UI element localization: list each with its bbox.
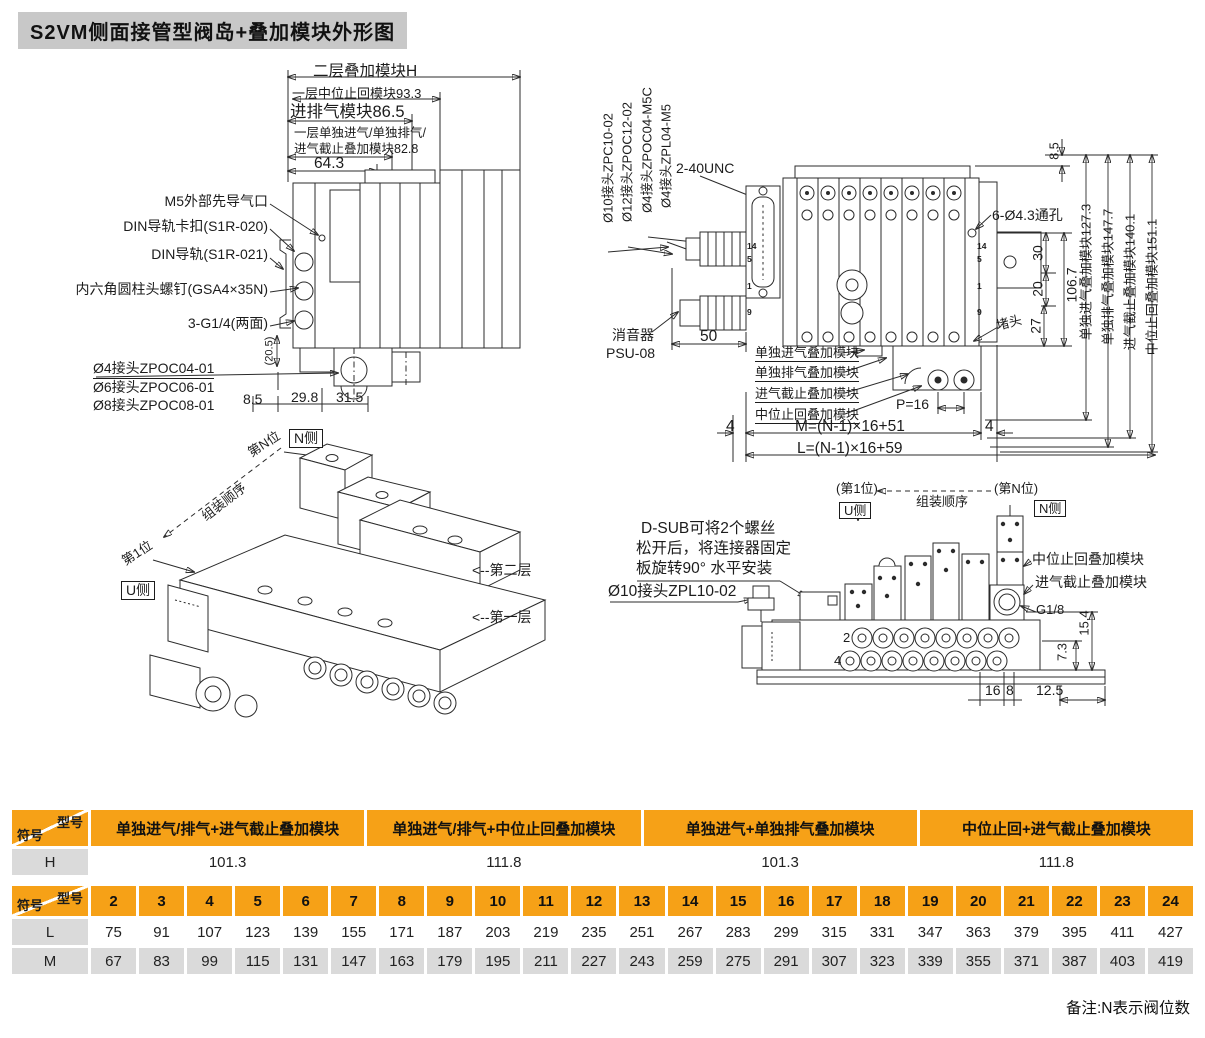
dim-label-stop-module-140-1: 进气截止叠加模块140.1: [1122, 214, 1137, 351]
dsub-pin-9: 9: [747, 307, 752, 317]
lm-table-header-19: 19: [908, 886, 953, 916]
module-label-air-in: 单独进气叠加模块: [755, 345, 859, 362]
dim-label-29-8: 29.8: [291, 389, 318, 406]
lm-table-value-L-4: 139: [283, 919, 328, 945]
fitting-label-zpl10: Ø10接头ZPL10-02: [608, 583, 736, 601]
label-u-side-iso: U侧: [121, 581, 155, 600]
dsub-pin-numbers: 14519: [977, 241, 991, 321]
lm-table-value-L-20: 395: [1052, 919, 1097, 945]
dim-label-supply-module: 进排气模块86.5: [290, 103, 405, 122]
lm-table-value-M-3: 115: [235, 948, 280, 974]
dsub-pin-5: 5: [977, 254, 982, 264]
dim-label-layer2-height: 二层叠加模块H: [313, 63, 417, 81]
h-table-value-2: 101.3: [644, 849, 917, 875]
h-table-value-1: 111.8: [367, 849, 640, 875]
lm-table-header-16: 16: [764, 886, 809, 916]
lm-table-value-M-15: 307: [812, 948, 857, 974]
lm-table-header-18: 18: [860, 886, 905, 916]
lm-table-header-11: 11: [523, 886, 568, 916]
corner-label-symbol: 符号: [17, 825, 43, 844]
h-table-header-0: 单独进气/排气+进气截止叠加模块: [91, 810, 364, 846]
catalog-page: S2VM侧面接管型阀岛+叠加模块外形图: [0, 0, 1205, 1038]
dsub-pin-1: 1: [747, 281, 752, 291]
dsub-pin-14: 14: [977, 241, 986, 251]
dsub-pin-14: 14: [747, 241, 756, 251]
dim-label-20-5: (20.5): [264, 337, 277, 366]
h-table-header-1: 单独进气/排气+中位止回叠加模块: [367, 810, 640, 846]
lm-table-value-M-9: 211: [523, 948, 568, 974]
fitting-label-zpc10: Ø10接头ZPC10-02: [600, 113, 615, 223]
label-second-layer: <--第二层: [472, 562, 532, 579]
lm-table-value-L-13: 283: [716, 919, 761, 945]
lm-table-value-M-7: 179: [427, 948, 472, 974]
module-label-air-out: 单独排气叠加模块: [755, 365, 859, 382]
h-table-row-label: H: [12, 849, 88, 875]
dim-label-12-5: 12.5: [1036, 682, 1063, 699]
label-n-side-iso: N侧: [289, 429, 323, 448]
lm-table-value-L-9: 219: [523, 919, 568, 945]
lm-table-value-L-2: 107: [187, 919, 232, 945]
fitting-label-zpoc12: Ø12接头ZPOC12-02: [619, 102, 634, 222]
lm-table-row-label-L: L: [12, 919, 88, 945]
dim-label-31-5: 31.5: [336, 389, 363, 406]
lm-table-corner-cell: 型号 符号: [12, 886, 88, 916]
label-through-holes: 6-Ø4.3通孔: [992, 207, 1063, 224]
dim-label-check-module-151-1: 中位止回叠加模块151.1: [1144, 219, 1159, 356]
lm-table-value-M-11: 243: [619, 948, 664, 974]
dim-label-air-out-module-147-7: 单独排气叠加模块147.7: [1100, 209, 1115, 346]
label-assembly-order-end: 组装顺序: [916, 494, 968, 509]
lm-table-header-22: 22: [1052, 886, 1097, 916]
dim-label-30: 30: [1030, 245, 1047, 261]
dsub-note-line2: 松开后，将连接器固定: [636, 540, 791, 558]
h-table-corner-cell: 型号 符号: [12, 810, 88, 846]
fitting-label-zpoc06: Ø6接头ZPOC06-01: [93, 379, 214, 396]
dsub-note-line3: 板旋转90° 水平安装: [636, 560, 772, 578]
lm-table-header-4: 4: [187, 886, 232, 916]
lm-table-value-M-18: 355: [956, 948, 1001, 974]
dim-label-50: 50: [700, 328, 717, 346]
label-position-n-end: (第N位): [994, 481, 1038, 496]
callout-g14-ports: 3-G1/4(两面): [38, 315, 268, 332]
dim-label-8-5-side: 8.5: [1048, 142, 1063, 159]
lm-table-header-23: 23: [1100, 886, 1145, 916]
dim-label-27: 27: [1028, 318, 1045, 334]
dsub-pin-5: 5: [747, 254, 752, 264]
lm-table-value-M-2: 99: [187, 948, 232, 974]
lm-table-value-L-0: 75: [91, 919, 136, 945]
corner-label-symbol: 符号: [17, 895, 43, 914]
lm-table-value-M-21: 403: [1100, 948, 1145, 974]
fitting-label-zpoc08: Ø8接头ZPOC08-01: [93, 397, 214, 414]
dsub-pin-9: 9: [977, 307, 982, 317]
callout-socket-head-screw: 内六角圆柱头螺钉(GSA4×35N): [38, 281, 268, 298]
iso-view-art: [150, 444, 545, 717]
label-silencer: 消音器: [612, 327, 654, 344]
lm-table: 型号 符号 2345678910111213141516171819202122…: [12, 886, 1193, 974]
lm-table-header-21: 21: [1004, 886, 1049, 916]
lm-table-header-13: 13: [619, 886, 664, 916]
lm-table-header-7: 7: [331, 886, 376, 916]
lm-table-value-L-18: 363: [956, 919, 1001, 945]
h-table-header-2: 单独进气+单独排气叠加模块: [644, 810, 917, 846]
h-table: 型号 符号 单独进气/排气+进气截止叠加模块单独进气/排气+中位止回叠加模块单独…: [12, 810, 1193, 875]
lm-table-value-L-5: 155: [331, 919, 376, 945]
lm-table-row-label-M: M: [12, 948, 88, 974]
lm-table-value-L-15: 315: [812, 919, 857, 945]
dim-label-15-4: 15.4: [1076, 610, 1091, 635]
lm-table-value-L-19: 379: [1004, 919, 1049, 945]
lm-table-header-12: 12: [571, 886, 616, 916]
dim-label-4-right: 4: [985, 418, 994, 436]
dim-label-20: 20: [1030, 281, 1047, 297]
lm-table-value-M-5: 147: [331, 948, 376, 974]
label-position-1-end: (第1位): [836, 481, 878, 496]
lm-table-value-L-7: 187: [427, 919, 472, 945]
dim-label-106-7: 106.7: [1064, 267, 1081, 302]
callout-m5-pilot-port: M5外部先导气口: [38, 193, 268, 210]
dim-label-8: 8: [1006, 682, 1014, 699]
lm-table-value-L-1: 91: [139, 919, 184, 945]
dsub-pin-numbers: 14519: [747, 241, 761, 321]
corner-label-model: 型号: [57, 812, 83, 831]
dim-label-pitch-16: P=16: [896, 396, 929, 413]
lm-table-value-M-16: 323: [860, 948, 905, 974]
dim-label-4-left: 4: [726, 418, 735, 436]
dim-label-check-module: 一层中位止回模块93.3: [292, 86, 421, 101]
dim-label-64-3: 64.3: [314, 155, 344, 173]
label-2-40unc: 2-40UNC: [676, 160, 734, 177]
lm-table-value-M-6: 163: [379, 948, 424, 974]
dim-label-l-formula: L=(N-1)×16+59: [797, 440, 903, 458]
lm-table-value-M-17: 339: [908, 948, 953, 974]
lm-table-value-M-12: 259: [668, 948, 713, 974]
callout-din-rail-clip: DIN导轨卡扣(S1R-020): [38, 218, 268, 235]
lm-table-header-20: 20: [956, 886, 1001, 916]
lm-table-value-M-10: 227: [571, 948, 616, 974]
dim-label-single-modules-line2: 进气截止叠加模块82.8: [294, 142, 418, 157]
lm-table-header-6: 6: [283, 886, 328, 916]
lm-table-value-L-6: 171: [379, 919, 424, 945]
label-port-row-4: 4: [834, 653, 841, 668]
lm-table-value-M-0: 67: [91, 948, 136, 974]
fitting-label-zpoc04: Ø4接头ZPOC04-01: [93, 360, 214, 379]
lm-table-header-15: 15: [716, 886, 761, 916]
lm-table-header-3: 3: [139, 886, 184, 916]
dim-label-single-modules-line1: 一层单独进气/单独排气/: [294, 126, 426, 141]
dim-label-air-in-module-127-3: 单独进气叠加模块127.3: [1078, 204, 1093, 341]
lm-table-header-5: 5: [235, 886, 280, 916]
lm-table-header-8: 8: [379, 886, 424, 916]
label-u-side-end: U侧: [839, 502, 871, 519]
footnote: 备注:N表示阀位数: [860, 996, 1190, 1018]
module-label-stop-end: 进气截止叠加模块: [1035, 574, 1147, 591]
dim-label-7-3: 7.3: [1054, 643, 1069, 661]
label-silencer-model: PSU-08: [606, 345, 655, 362]
h-table-header-3: 中位止回+进气截止叠加模块: [920, 810, 1193, 846]
lm-table-value-L-16: 331: [860, 919, 905, 945]
lm-table-value-M-13: 275: [716, 948, 761, 974]
lm-table-value-M-20: 387: [1052, 948, 1097, 974]
lm-table-value-L-3: 123: [235, 919, 280, 945]
dsub-pin-1: 1: [977, 281, 982, 291]
lm-table-value-L-21: 411: [1100, 919, 1145, 945]
label-n-side-end: N侧: [1034, 500, 1066, 517]
lm-table-value-L-10: 235: [571, 919, 616, 945]
lm-table-header-10: 10: [475, 886, 520, 916]
dsub-note-line1: D-SUB可将2个螺丝: [641, 520, 775, 538]
lm-table-value-L-14: 299: [764, 919, 809, 945]
label-g18-port: G1/8: [1036, 602, 1064, 617]
lm-table-value-M-22: 419: [1148, 948, 1193, 974]
lm-table-value-M-19: 371: [1004, 948, 1049, 974]
lm-table-value-L-22: 427: [1148, 919, 1193, 945]
callout-din-rail: DIN导轨(S1R-021): [38, 246, 268, 263]
lm-table-value-L-17: 347: [908, 919, 953, 945]
label-port-row-2: 2: [843, 630, 850, 645]
lm-table-header-17: 17: [812, 886, 857, 916]
lm-table-value-M-14: 291: [764, 948, 809, 974]
lm-table-header-14: 14: [668, 886, 713, 916]
h-table-value-0: 101.3: [91, 849, 364, 875]
lm-table-value-L-11: 251: [619, 919, 664, 945]
label-first-layer: <--第一层: [472, 609, 532, 626]
lm-table-value-L-12: 267: [668, 919, 713, 945]
dim-label-m-formula: M=(N-1)×16+51: [795, 418, 905, 436]
h-table-value-3: 111.8: [920, 849, 1193, 875]
dim-label-16: 16: [985, 682, 1001, 699]
lm-table-header-24: 24: [1148, 886, 1193, 916]
fitting-label-zpoc04-m5c: Ø4接头ZPOC04-M5C: [639, 87, 654, 213]
corner-label-model: 型号: [57, 888, 83, 907]
lm-table-value-M-8: 195: [475, 948, 520, 974]
lm-table-header-2: 2: [91, 886, 136, 916]
fitting-label-zpl04-m5: Ø4接头ZPL04-M5: [658, 104, 673, 208]
lm-table-value-L-8: 203: [475, 919, 520, 945]
module-label-check-end: 中位止回叠加模块: [1032, 551, 1144, 568]
lm-table-value-M-4: 131: [283, 948, 328, 974]
module-label-stop: 进气截止叠加模块: [755, 386, 859, 403]
dim-label-8-5-front: 8.5: [243, 391, 262, 408]
lm-table-header-9: 9: [427, 886, 472, 916]
lm-table-value-M-1: 83: [139, 948, 184, 974]
